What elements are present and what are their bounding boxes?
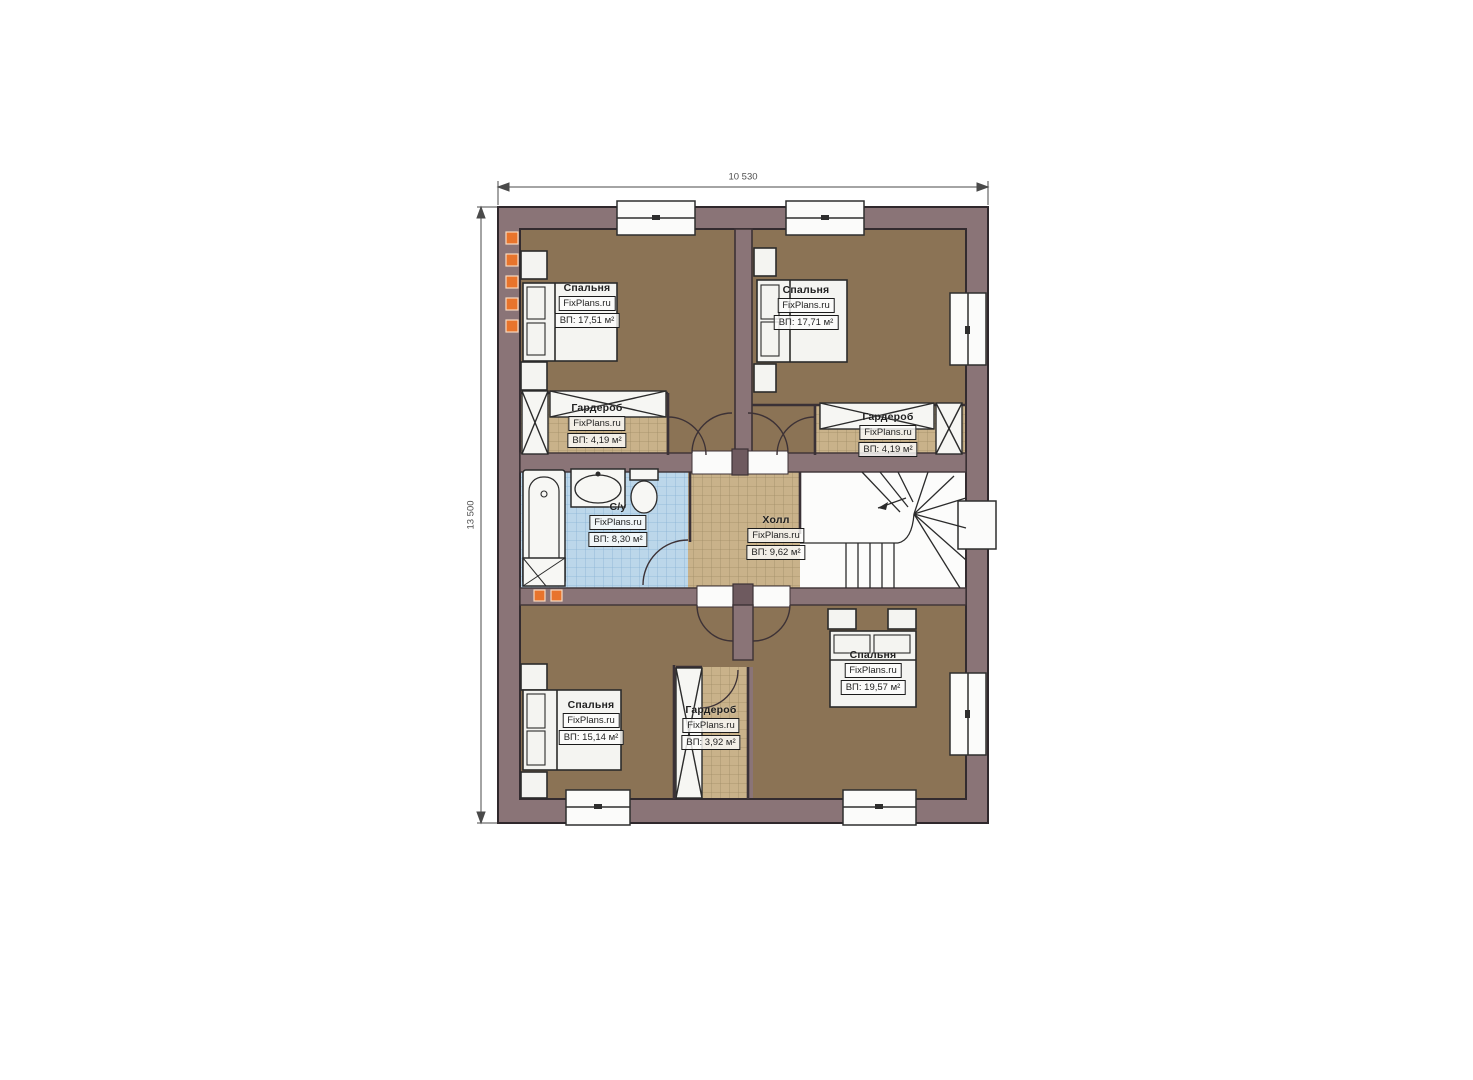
- door-threshold-top-left: [692, 451, 732, 474]
- brand-box: FixPlans.ru: [568, 416, 626, 431]
- bedroom-top-left-entry-floor: [668, 393, 737, 455]
- room-name: Спальня: [783, 284, 830, 296]
- brand-box: FixPlans.ru: [682, 718, 740, 733]
- closet-left-vertical: [522, 391, 548, 454]
- brand-box: FixPlans.ru: [777, 298, 835, 313]
- door-threshold-bottom-left: [697, 586, 733, 607]
- area-box: ВП: 15,14 м²: [559, 730, 624, 745]
- area-box: ВП: 4,19 м²: [567, 433, 626, 448]
- brand-box: FixPlans.ru: [589, 515, 647, 530]
- room-label-bedroom-top-right: Спальня FixPlans.ru ВП: 17,71 м²: [774, 284, 839, 330]
- room-name: Спальня: [564, 282, 611, 294]
- window-right-bottom: [950, 673, 986, 755]
- wall-marker: [506, 276, 518, 288]
- room-label-hall: Холл FixPlans.ru ВП: 9,62 м²: [746, 514, 805, 560]
- room-label-bathroom: С/у FixPlans.ru ВП: 8,30 м²: [588, 501, 647, 547]
- floor-plan-drawing: [0, 0, 1473, 1080]
- dimension-top-label: 10 530: [728, 172, 757, 183]
- wall-stub-bottom-center: [733, 605, 753, 660]
- window-bottom-2: [843, 790, 916, 825]
- brand-box: FixPlans.ru: [844, 663, 902, 678]
- room-label-bedroom-bottom-right: Спальня FixPlans.ru ВП: 19,57 м²: [841, 649, 906, 695]
- stairs-floor: [800, 472, 966, 588]
- area-box: ВП: 9,62 м²: [746, 545, 805, 560]
- bathroom-corner-cabinet: [523, 558, 565, 586]
- area-box: ВП: 3,92 м²: [681, 735, 740, 750]
- closet-right-vertical: [936, 403, 962, 454]
- room-name: Холл: [762, 514, 789, 526]
- brand-box: FixPlans.ru: [562, 713, 620, 728]
- wall-marker: [506, 320, 518, 332]
- room-label-wardrobe-right: Гардероб FixPlans.ru ВП: 4,19 м²: [858, 411, 917, 457]
- brand-box: FixPlans.ru: [747, 528, 805, 543]
- room-name: Спальня: [568, 699, 615, 711]
- window-bottom-1: [566, 790, 630, 825]
- wall-marker: [551, 590, 562, 601]
- wall-marker: [534, 590, 545, 601]
- room-label-wardrobe-left: Гардероб FixPlans.ru ВП: 4,19 м²: [567, 402, 626, 448]
- area-box: ВП: 17,71 м²: [774, 315, 839, 330]
- wall-marker: [506, 254, 518, 266]
- room-label-bedroom-top-left: Спальня FixPlans.ru ВП: 17,51 м²: [555, 282, 620, 328]
- window-right-top: [950, 293, 986, 365]
- wall-marker: [506, 298, 518, 310]
- room-name: Гардероб: [862, 411, 913, 423]
- door-threshold-bottom-right: [753, 586, 790, 607]
- window-top-2: [786, 201, 864, 235]
- room-label-bedroom-bottom-left: Спальня FixPlans.ru ВП: 15,14 м²: [559, 699, 624, 745]
- room-name: Спальня: [850, 649, 897, 661]
- door-threshold-top-right: [748, 451, 788, 474]
- dimension-left-label: 13 500: [466, 500, 477, 529]
- wall-marker: [506, 232, 518, 244]
- room-name: С/у: [610, 501, 627, 513]
- brand-box: FixPlans.ru: [859, 425, 917, 440]
- wall-between-top-bedrooms: [735, 229, 752, 453]
- bedroom-top-right-entry-floor: [752, 405, 815, 455]
- area-box: ВП: 4,19 м²: [858, 442, 917, 457]
- window-right-stairs: [958, 501, 996, 549]
- area-box: ВП: 17,51 м²: [555, 313, 620, 328]
- room-name: Гардероб: [685, 704, 736, 716]
- room-name: Гардероб: [571, 402, 622, 414]
- brand-box: FixPlans.ru: [558, 296, 616, 311]
- window-top-1: [617, 201, 695, 235]
- area-box: ВП: 19,57 м²: [841, 680, 906, 695]
- room-label-wardrobe-bottom: Гардероб FixPlans.ru ВП: 3,92 м²: [681, 704, 740, 750]
- area-box: ВП: 8,30 м²: [588, 532, 647, 547]
